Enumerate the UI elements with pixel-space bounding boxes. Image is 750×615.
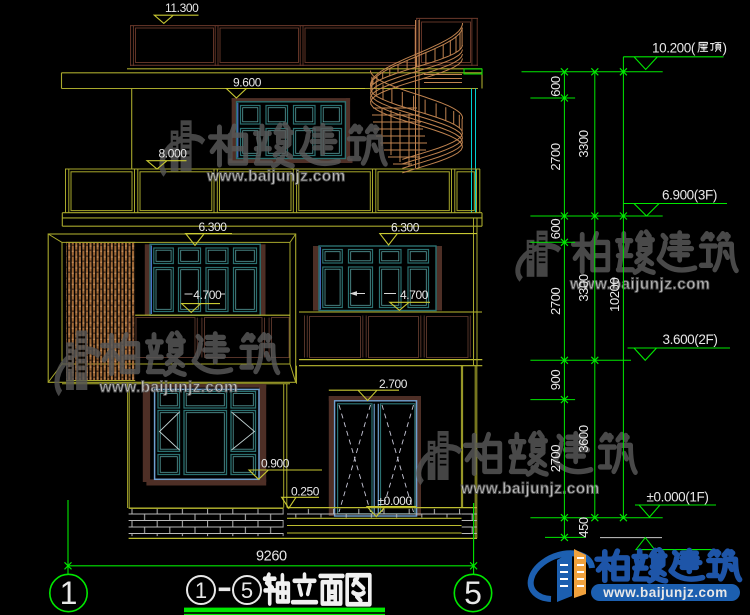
svg-text:2.700: 2.700 xyxy=(379,377,408,391)
svg-text:3300: 3300 xyxy=(576,130,591,157)
svg-text:5: 5 xyxy=(241,578,253,603)
svg-text:2700: 2700 xyxy=(548,143,563,170)
svg-text:5: 5 xyxy=(464,575,482,611)
svg-text:9260: 9260 xyxy=(256,549,287,565)
svg-text:±0.000: ±0.000 xyxy=(378,494,413,508)
svg-text:4.700: 4.700 xyxy=(193,288,222,302)
svg-text:6.900(3F): 6.900(3F) xyxy=(662,188,717,203)
svg-text:900: 900 xyxy=(548,370,563,391)
svg-text:6.300: 6.300 xyxy=(391,221,420,235)
svg-text:10.200(: 10.200( xyxy=(652,41,696,56)
svg-text:3300: 3300 xyxy=(576,274,591,301)
svg-text:11.300: 11.300 xyxy=(165,1,199,15)
svg-text:8.000: 8.000 xyxy=(159,147,188,161)
svg-text:www.baijunjz.com: www.baijunjz.com xyxy=(99,379,239,396)
svg-text:450: 450 xyxy=(576,517,591,538)
svg-text:1: 1 xyxy=(60,575,78,611)
svg-text:3600: 3600 xyxy=(576,425,591,452)
svg-text:2700: 2700 xyxy=(548,445,563,472)
svg-text:0.900: 0.900 xyxy=(261,457,290,471)
svg-text:): ) xyxy=(723,41,727,56)
svg-text:6.300: 6.300 xyxy=(199,220,228,234)
svg-text:www.baijunjz.com: www.baijunjz.com xyxy=(206,168,346,185)
svg-text:600: 600 xyxy=(548,219,563,240)
svg-text:4.700: 4.700 xyxy=(400,288,429,302)
svg-text:3.600(2F): 3.600(2F) xyxy=(663,332,718,347)
svg-text:www.baijunjz.com: www.baijunjz.com xyxy=(602,585,728,600)
svg-text:0.250: 0.250 xyxy=(291,484,320,498)
svg-text:±0.000(1F): ±0.000(1F) xyxy=(647,490,709,505)
svg-text:600: 600 xyxy=(548,76,563,97)
svg-text:10200: 10200 xyxy=(607,278,622,312)
svg-text:9.600: 9.600 xyxy=(233,76,262,90)
svg-text:2700: 2700 xyxy=(548,287,563,314)
svg-text:1: 1 xyxy=(195,578,207,603)
svg-text:www.baijunjz.com: www.baijunjz.com xyxy=(460,481,600,498)
